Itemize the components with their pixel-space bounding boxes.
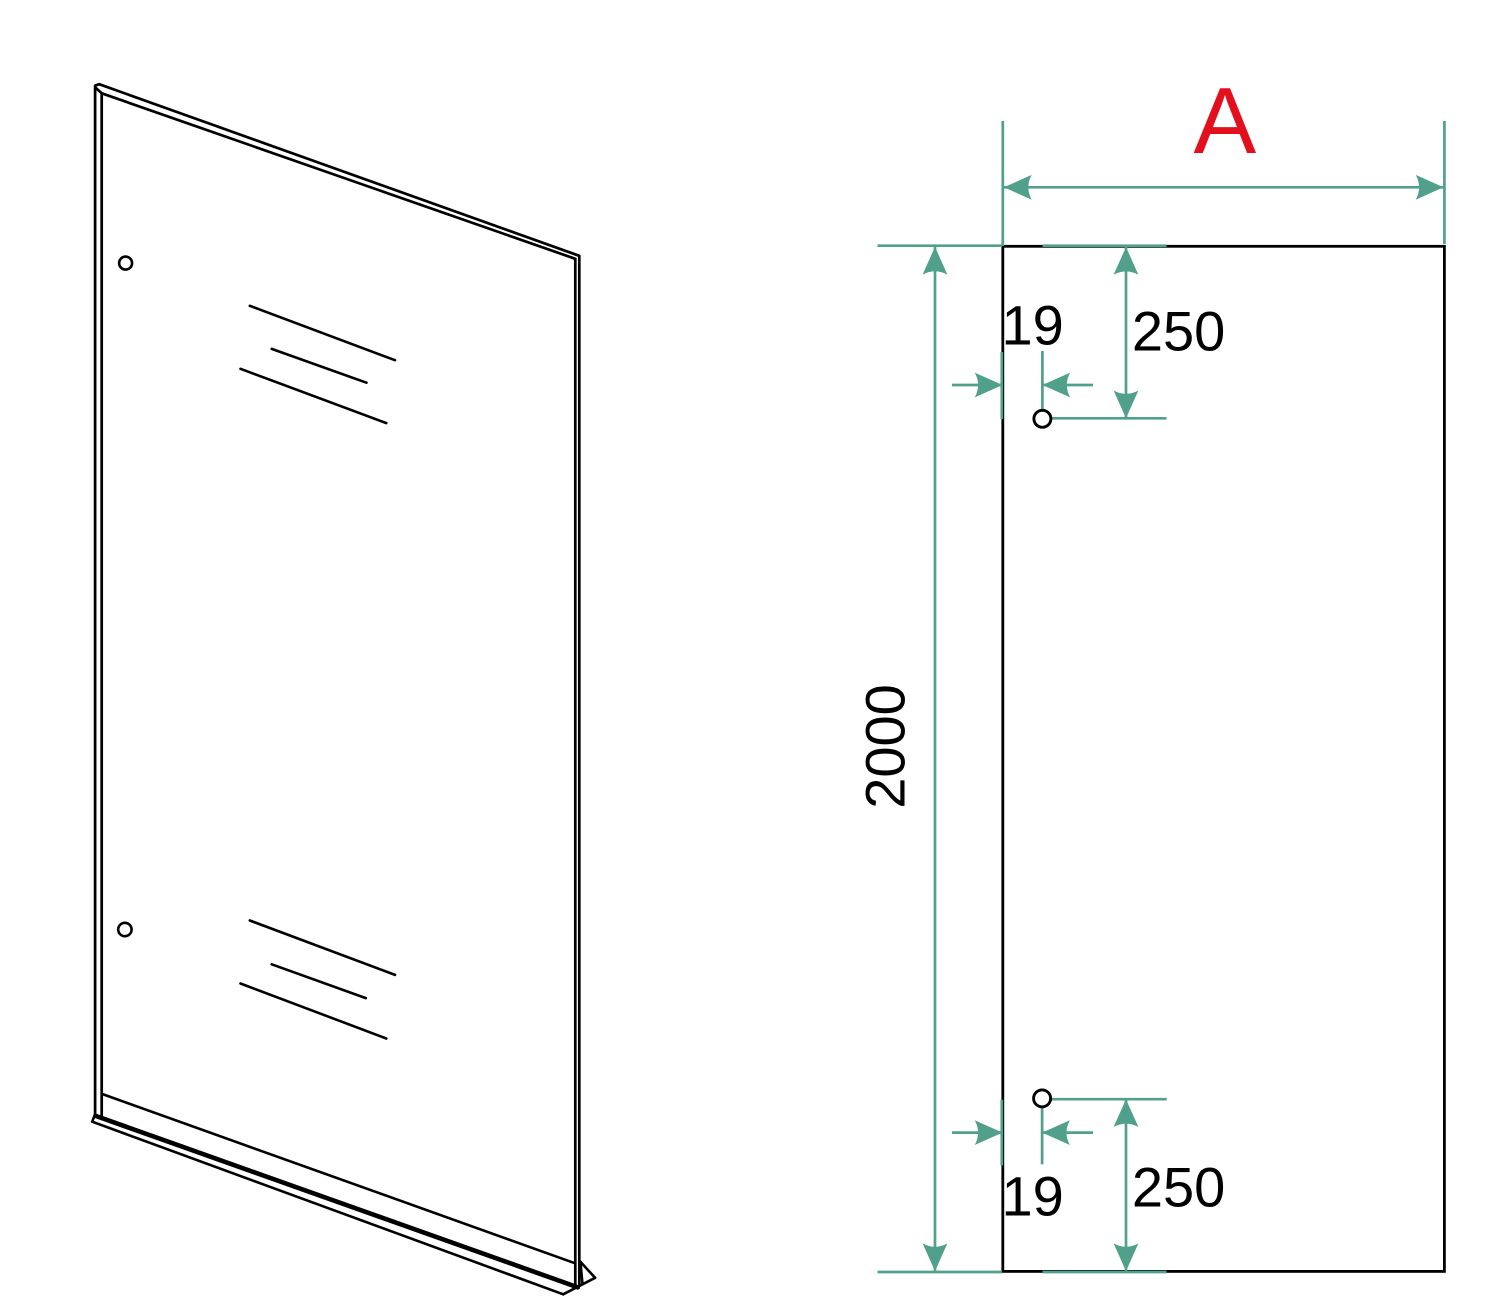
svg-text:A: A	[1194, 68, 1257, 173]
svg-text:19: 19	[1002, 294, 1064, 357]
svg-text:2000: 2000	[854, 684, 917, 809]
svg-text:250: 250	[1132, 1156, 1225, 1219]
svg-text:19: 19	[1002, 1164, 1064, 1227]
svg-text:250: 250	[1132, 300, 1225, 363]
